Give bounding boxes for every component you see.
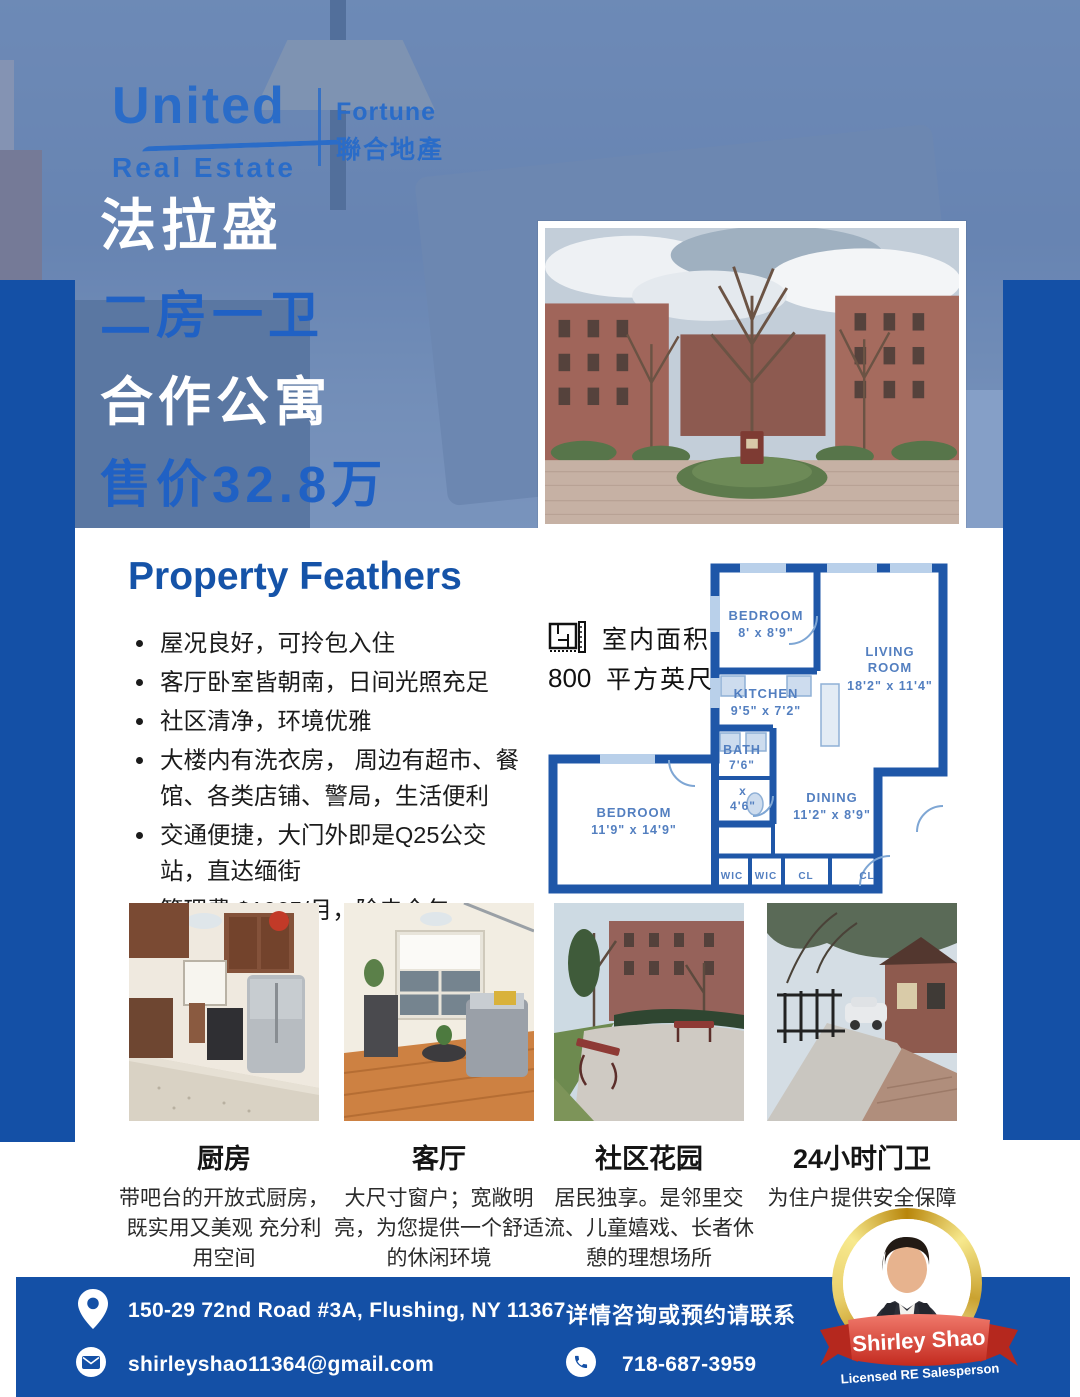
email-text: shirleyshao11364@gmail.com [128, 1353, 434, 1377]
interior-area-info: 室内面积 800 平方英尺 [548, 620, 714, 696]
fp-wic1-label: WIC [721, 871, 743, 882]
headline-layout: 二房一卫 [100, 290, 387, 341]
area-unit: 平方英尺 [606, 660, 714, 696]
fp-bath-label: BATH [723, 743, 761, 757]
headline-type: 合作公寓 [100, 376, 387, 429]
gallery-garden: 社区花园 居民独享。是邻里交流、儿童嬉戏、长者休憩的理想场所 [543, 903, 755, 1274]
floorplan-art: BEDROOM 8' x 8'9" LIVING ROOM 18'2" x 11… [545, 556, 965, 901]
features-list: 屋况良好，可拎包入住 客厅卧室皆朝南，日间光照充足 社区清净，环境优雅 大楼内有… [128, 625, 533, 928]
fp-living-label2: ROOM [868, 660, 912, 675]
fp-living-size: 18'2" x 11'4" [847, 679, 933, 693]
contact-cta-wrap: 详情咨询或预约请联系 [566, 1298, 796, 1330]
fp-bath-x: x [739, 784, 747, 798]
gallery-garden-title: 社区花园 [543, 1137, 755, 1176]
kitchen-photo [129, 903, 319, 1121]
phone-text-wrap: 718-687-3959 [622, 1353, 756, 1377]
headline-price: 售价32.8万 [100, 459, 387, 510]
hero-section: United Real Estate Fortune 聯合地產 法拉盛 二房一卫… [0, 0, 1080, 528]
fp-bath-size1: 7'6" [729, 758, 755, 772]
livingroom-photo [344, 903, 534, 1121]
area-value: 800 [548, 663, 592, 694]
fortune-cn-text: 聯合地產 [336, 130, 444, 166]
floorplan-diagram: BEDROOM 8' x 8'9" LIVING ROOM 18'2" x 11… [545, 556, 965, 901]
gallery-doorman-title: 24小时门卫 [755, 1137, 969, 1176]
address-row [78, 1289, 108, 1329]
feature-item: 客厅卧室皆朝南，日间光照充足 [128, 664, 533, 700]
gallery-kitchen-title: 厨房 [118, 1137, 330, 1176]
gallery-garden-desc: 居民独享。是邻里交流、儿童嬉戏、长者休憩的理想场所 [543, 1184, 755, 1274]
location-pin-icon [78, 1289, 108, 1329]
gallery-livingroom-desc: 大尺寸窗户；宽敞明亮，为您提供一个舒适的休闲环境 [333, 1184, 545, 1274]
feature-item: 大楼内有洗衣房， 周边有超市、餐馆、各类店铺、警局，生活便利 [128, 742, 533, 814]
headline-location: 法拉盛 [100, 198, 387, 254]
gallery-kitchen-desc: 带吧台的开放式厨房，既实用又美观 充分利用空间 [118, 1184, 330, 1274]
logo-divider [318, 88, 321, 166]
headline-block: 法拉盛 二房一卫 合作公寓 售价32.8万 [100, 198, 387, 510]
fp-bath-size2: 4'6" [730, 799, 756, 813]
gallery-doorman: 24小时门卫 为住户提供安全保障 [755, 903, 969, 1214]
email-text-wrap: shirleyshao11364@gmail.com [128, 1353, 434, 1377]
courtyard-photo-art [545, 228, 959, 524]
features-section: Property Feathers 屋况良好，可拎包入住 客厅卧室皆朝南，日间光… [128, 555, 533, 931]
logo-united-text: United [112, 80, 342, 132]
fp-dining-label: DINING [806, 790, 858, 805]
phone-icon [566, 1347, 596, 1377]
gallery-livingroom-title: 客厅 [333, 1137, 545, 1176]
feature-item: 社区清净，环境优雅 [128, 703, 533, 739]
united-real-estate-logo: United Real Estate [112, 80, 342, 184]
ruler-floorplan-icon [548, 620, 588, 656]
email-row [76, 1347, 106, 1377]
fp-kitchen-label: KITCHEN [734, 686, 799, 701]
fp-wic2-label: WIC [755, 871, 777, 882]
fp-bedroom-top-size: 8' x 8'9" [738, 626, 794, 640]
courtyard-photo [538, 221, 966, 528]
logo-real-estate-text: Real Estate [112, 152, 342, 184]
left-accent-bar [0, 280, 75, 1142]
fp-kitchen-size: 9'5" x 7'2" [731, 704, 802, 718]
right-accent-bar [1003, 280, 1080, 1140]
doorman-gate-photo [767, 903, 957, 1121]
features-title: Property Feathers [128, 555, 533, 599]
fp-cl1-label: CL [798, 871, 813, 882]
fp-dining-size: 11'2" x 8'9" [793, 808, 871, 822]
feature-item: 交通便捷，大门外即是Q25公交站，直达缅街 [128, 817, 533, 889]
gallery-kitchen: 厨房 带吧台的开放式厨房，既实用又美观 充分利用空间 [118, 903, 330, 1274]
phone-text: 718-687-3959 [622, 1353, 756, 1377]
fp-bedroom-top-label: BEDROOM [729, 608, 804, 623]
fp-bedroom-main-label: BEDROOM [597, 805, 672, 820]
fortune-brand: Fortune 聯合地產 [336, 98, 444, 166]
contact-cta-text: 详情咨询或预约请联系 [566, 1298, 796, 1330]
feature-item: 屋况良好，可拎包入住 [128, 625, 533, 661]
flyer-page: United Real Estate Fortune 聯合地產 法拉盛 二房一卫… [0, 0, 1080, 1397]
address-text: 150-29 72nd Road #3A, Flushing, NY 11367 [128, 1299, 566, 1323]
garden-photo [554, 903, 744, 1121]
fp-bedroom-main-size: 11'9" x 14'9" [591, 823, 677, 837]
phone-row [566, 1347, 596, 1377]
fortune-en-text: Fortune [336, 98, 444, 127]
fp-living-label1: LIVING [865, 644, 914, 659]
envelope-icon [76, 1347, 106, 1377]
area-label: 室内面积 [602, 620, 710, 656]
gallery-livingroom: 客厅 大尺寸窗户；宽敞明亮，为您提供一个舒适的休闲环境 [333, 903, 545, 1274]
fp-cl2-label: CL [859, 871, 874, 882]
address-text-wrap: 150-29 72nd Road #3A, Flushing, NY 11367 [128, 1299, 566, 1323]
agent-badge: Shirley Shao Licensed RE Salesperson [822, 1202, 1018, 1397]
